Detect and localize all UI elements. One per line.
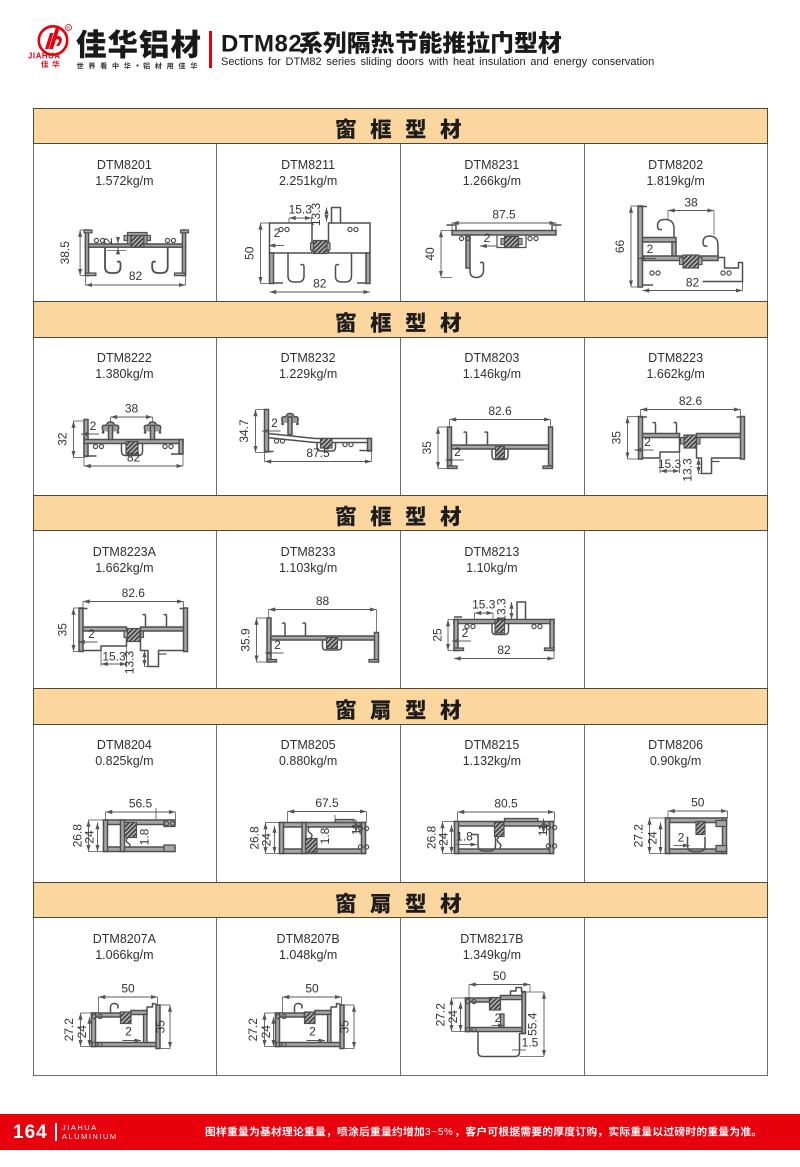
svg-text:15.3: 15.3 xyxy=(658,457,682,471)
svg-text:2: 2 xyxy=(644,435,651,449)
svg-text:3: 3 xyxy=(425,1127,431,1138)
svg-text:40: 40 xyxy=(423,247,437,261)
svg-text:1.8: 1.8 xyxy=(318,827,332,844)
svg-text:82: 82 xyxy=(497,643,511,657)
svg-text:2: 2 xyxy=(484,231,491,245)
svg-text:82: 82 xyxy=(129,269,143,283)
svg-text:82: 82 xyxy=(686,276,700,290)
svg-text:55.4: 55.4 xyxy=(526,1012,540,1036)
svg-text:2: 2 xyxy=(274,638,281,652)
svg-text:1.8: 1.8 xyxy=(456,830,473,844)
svg-text:82.6: 82.6 xyxy=(488,404,512,418)
svg-text:DTM82: DTM82 xyxy=(221,31,302,58)
svg-text:13.3: 13.3 xyxy=(123,650,137,674)
svg-text:2: 2 xyxy=(647,242,654,256)
svg-text:2: 2 xyxy=(271,416,278,430)
svg-text:24: 24 xyxy=(259,1025,273,1039)
svg-text:11: 11 xyxy=(350,822,364,835)
svg-text:2: 2 xyxy=(88,627,95,641)
svg-text:67.5: 67.5 xyxy=(315,796,339,810)
svg-text:1.5: 1.5 xyxy=(522,1036,539,1050)
svg-text:2: 2 xyxy=(462,626,469,640)
svg-text:2: 2 xyxy=(678,831,685,845)
svg-text:66: 66 xyxy=(613,240,627,254)
svg-text:24: 24 xyxy=(260,833,274,847)
svg-text:13.3: 13.3 xyxy=(309,202,323,226)
svg-text:%: % xyxy=(444,1127,453,1138)
svg-text:50: 50 xyxy=(121,982,135,996)
svg-text:2: 2 xyxy=(101,237,115,244)
svg-text:24: 24 xyxy=(75,1025,89,1039)
svg-text:80.5: 80.5 xyxy=(494,797,518,811)
svg-text:82.6: 82.6 xyxy=(122,586,146,600)
svg-text:82.6: 82.6 xyxy=(679,394,703,408)
svg-text:50: 50 xyxy=(305,982,319,996)
svg-text:2: 2 xyxy=(309,1025,316,1039)
svg-text:13.3: 13.3 xyxy=(681,458,695,482)
svg-text:24: 24 xyxy=(446,1010,460,1024)
svg-text:2: 2 xyxy=(274,226,281,240)
svg-text:JIAHUA: JIAHUA xyxy=(28,52,61,61)
svg-text:82: 82 xyxy=(313,277,327,291)
svg-text:24: 24 xyxy=(646,831,660,845)
svg-text:35.9: 35.9 xyxy=(239,628,253,652)
svg-text:35: 35 xyxy=(338,1020,352,1034)
svg-text:25: 25 xyxy=(431,628,445,642)
svg-text:50: 50 xyxy=(243,246,257,260)
svg-text:2: 2 xyxy=(454,445,461,459)
svg-text:27.2: 27.2 xyxy=(632,824,646,848)
svg-text:11: 11 xyxy=(536,823,550,836)
svg-text:5: 5 xyxy=(438,1127,444,1138)
svg-text:2: 2 xyxy=(90,419,97,433)
svg-text:1.8: 1.8 xyxy=(138,828,152,845)
svg-text:35: 35 xyxy=(154,1020,168,1034)
svg-text:24: 24 xyxy=(437,832,451,846)
svg-text:34.7: 34.7 xyxy=(237,419,251,443)
svg-text:82: 82 xyxy=(127,451,141,465)
svg-text:~: ~ xyxy=(431,1127,437,1138)
svg-text:50: 50 xyxy=(691,796,705,810)
svg-text:38: 38 xyxy=(684,196,698,210)
svg-text:38.5: 38.5 xyxy=(58,241,72,265)
svg-text:15.3: 15.3 xyxy=(472,598,496,612)
svg-text:13.3: 13.3 xyxy=(495,598,509,622)
svg-text:32: 32 xyxy=(56,432,70,446)
svg-text:24: 24 xyxy=(83,830,97,844)
svg-text:35: 35 xyxy=(420,441,434,455)
svg-text:38: 38 xyxy=(125,402,139,416)
svg-text:88: 88 xyxy=(316,594,330,608)
svg-text:2: 2 xyxy=(495,1011,502,1025)
svg-text:35: 35 xyxy=(56,623,70,637)
svg-text:87.5: 87.5 xyxy=(492,208,516,222)
svg-text:50: 50 xyxy=(493,969,507,983)
svg-text:56.5: 56.5 xyxy=(129,797,153,811)
svg-text:35: 35 xyxy=(610,431,624,445)
svg-text:87.5: 87.5 xyxy=(306,446,330,460)
svg-text:2: 2 xyxy=(125,1025,132,1039)
